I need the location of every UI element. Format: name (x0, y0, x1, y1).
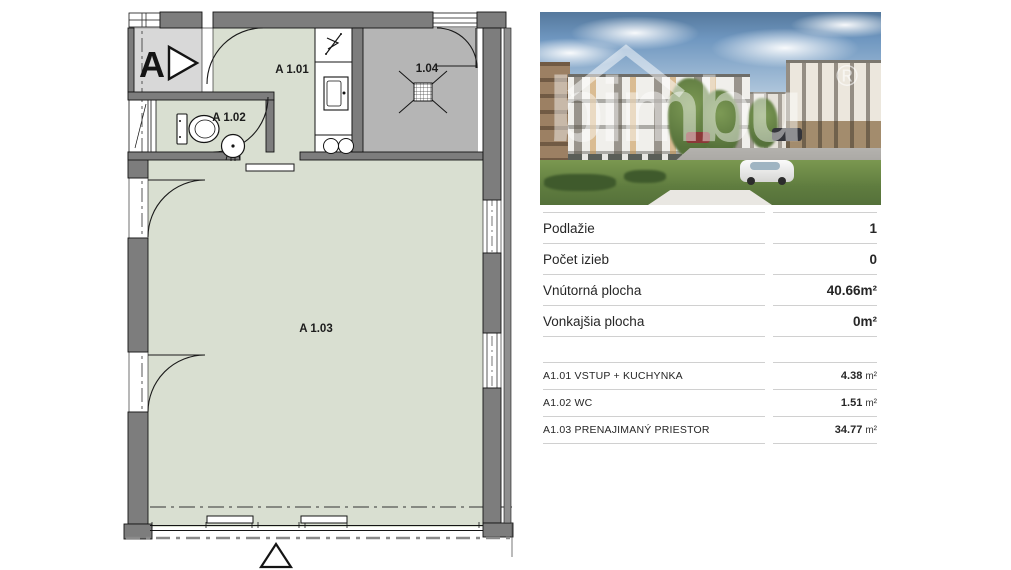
room-areas-table: A1.01 VSTUP + KUCHYNKA 4.38 m² A1.02 WC … (543, 362, 877, 444)
room-area-label: A1.03 PRENAJIMANÝ PRIESTOR (543, 417, 765, 444)
detail-value: 40.66m² (773, 275, 877, 306)
detail-value: 0m² (773, 306, 877, 337)
table-row: Vnútorná plocha 40.66m² (543, 275, 877, 306)
table-row: Podlažie 1 (543, 212, 877, 244)
detail-label: Vonkajšia plocha (543, 306, 765, 337)
room-area-value: 34.77 m² (773, 417, 877, 444)
detail-label: Počet izieb (543, 244, 765, 275)
area-number: 1.51 (841, 397, 862, 409)
table-row: A1.03 PRENAJIMANÝ PRIESTOR 34.77 m² (543, 417, 877, 444)
room-label-a102: A 1.02 (212, 112, 245, 124)
detail-label: Vnútorná plocha (543, 275, 765, 306)
watermark-logo: bimbu (548, 64, 878, 156)
floor-plan-drawing: A A 1.01 A 1.02 A 1.03 1.04 (0, 0, 540, 570)
kitchen-sink-icon (324, 77, 348, 110)
table-row: Počet izieb 0 (543, 244, 877, 275)
room-area-value: 1.51 m² (773, 390, 877, 417)
detail-value: 1 (773, 212, 877, 244)
room-area-label: A1.02 WC (543, 390, 765, 417)
detail-label: Podlažie (543, 212, 765, 244)
area-number: 34.77 (835, 424, 863, 436)
room-area-value: 4.38 m² (773, 362, 877, 390)
table-row: Vonkajšia plocha 0m² (543, 306, 877, 337)
unit-details-table: Podlažie 1 Počet izieb 0 Vnútorná plocha… (543, 212, 877, 337)
detail-value: 0 (773, 244, 877, 275)
listing-detail-panel: A A 1.01 A 1.02 A 1.03 1.04 (0, 0, 1011, 570)
room-label-a103: A 1.03 (299, 323, 332, 335)
room-label-104: 1.04 (416, 63, 439, 75)
area-unit: m² (865, 425, 877, 436)
room-label-a101: A 1.01 (275, 64, 309, 76)
entry-arrow-icon (261, 544, 291, 567)
table-row: A1.02 WC 1.51 m² (543, 390, 877, 417)
area-unit: m² (865, 371, 877, 382)
property-photo[interactable]: bimbu ® (540, 12, 881, 205)
area-unit: m² (865, 398, 877, 409)
exterior-lines (126, 523, 513, 557)
area-number: 4.38 (841, 370, 862, 382)
watermark-registered-icon: ® (836, 62, 858, 92)
room-area-label: A1.01 VSTUP + KUCHYNKA (543, 362, 765, 390)
section-marker-letter: A (139, 44, 165, 85)
table-row: A1.01 VSTUP + KUCHYNKA 4.38 m² (543, 362, 877, 390)
